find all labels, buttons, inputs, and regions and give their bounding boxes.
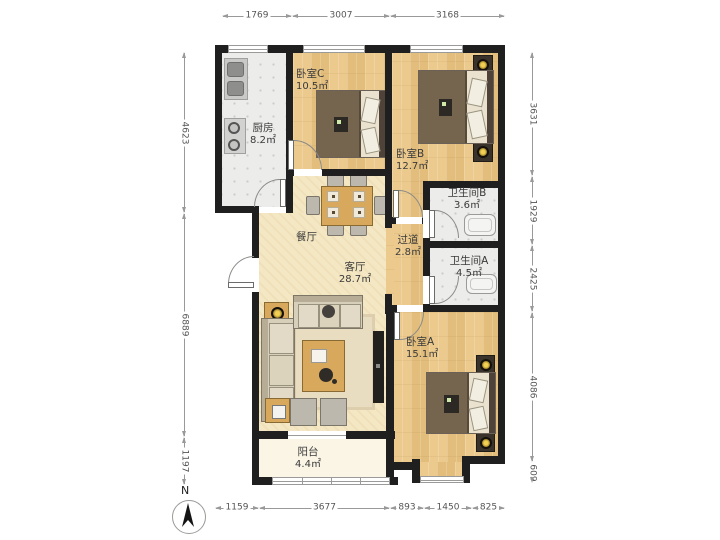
dimension-value: 609 (528, 462, 537, 483)
wall (386, 305, 394, 485)
room-label-living: 客厅 28.7㎡ (328, 261, 382, 287)
room-name: 客厅 (345, 261, 366, 274)
kitchen-sink-basin (227, 62, 244, 77)
room-area: 10.5㎡ (296, 81, 328, 94)
stove-burner (228, 139, 240, 151)
room-area: 4.4㎡ (295, 459, 321, 472)
dimension-left-1: 4623 (178, 52, 190, 213)
dimension-top-2: 3007 (292, 10, 390, 22)
dimension-left-2: 6889 (178, 213, 190, 437)
kitchen-sink-basin (227, 81, 244, 96)
window (410, 45, 463, 53)
dimension-value: 2425 (528, 265, 537, 292)
room-label-bedroom-b: 卧室B 12.7㎡ (396, 148, 428, 174)
dimension-value: 825 (478, 504, 499, 513)
dimension-right-1: 3631 (526, 52, 538, 176)
room-name: 过道 (398, 234, 419, 247)
dimension-value: 4623 (180, 119, 189, 146)
room-label-hallway: 过道 2.8㎡ (389, 234, 427, 260)
dimension-bottom-4: 1450 (424, 502, 472, 514)
door-leaf-bathroom-b (429, 210, 435, 238)
door-leaf-bedroom-a (394, 312, 400, 340)
nightstand (476, 433, 495, 452)
wall (215, 45, 222, 213)
wall (286, 45, 293, 213)
dimension-value: 1929 (528, 197, 537, 224)
room-area: 12.7㎡ (396, 161, 428, 174)
wall (498, 45, 505, 464)
room-name: 餐厅 (296, 231, 317, 244)
dimension-value: 6889 (180, 312, 189, 339)
bed-bedroom-c (316, 90, 386, 158)
bed-bedroom-a (426, 372, 496, 434)
dimension-bottom-2: 3677 (259, 502, 390, 514)
dimension-right-2: 1929 (526, 176, 538, 245)
room-area: 4.5㎡ (456, 268, 482, 281)
room-label-dining: 餐厅 (296, 231, 317, 244)
dimension-value: 1197 (180, 448, 189, 475)
bay-window (420, 476, 464, 483)
dimension-value: 893 (396, 504, 417, 513)
lamp-icon (480, 437, 492, 449)
tv-unit (373, 331, 384, 403)
room-label-bathroom-b: 卫生间B 3.6㎡ (440, 187, 494, 213)
dimension-value: 3677 (311, 504, 338, 513)
room-name: 卫生间A (450, 255, 489, 268)
floor-bedroom-a-bay (419, 462, 463, 477)
teapot-icon (319, 368, 333, 382)
dimension-value: 4086 (528, 374, 537, 401)
dimension-top-1: 1769 (222, 10, 292, 22)
place-setting (327, 207, 339, 218)
room-label-bedroom-a: 卧室A 15.1㎡ (406, 336, 438, 362)
wall (393, 462, 419, 470)
door-opening (294, 169, 322, 176)
door-leaf-bedroom-b (393, 190, 399, 218)
dimension-value: 3007 (328, 12, 355, 21)
floor-plan-canvas: 厨房 8.2㎡ 卧室C 10.5㎡ 卧室B 12.7㎡ 卫生间B 3.6㎡ 过道… (0, 0, 720, 540)
dimension-left-3: 1197 (178, 437, 190, 485)
ottoman (320, 398, 347, 426)
wall (423, 241, 498, 248)
nightstand (473, 142, 493, 162)
north-needle-icon (172, 500, 204, 532)
room-name: 阳台 (298, 446, 319, 459)
ottoman (290, 398, 317, 426)
room-name: 厨房 (253, 122, 274, 135)
place-setting (353, 207, 365, 218)
window (228, 45, 268, 53)
dimension-value: 1769 (244, 12, 271, 21)
dimension-value: 3631 (528, 101, 537, 128)
wall (252, 206, 259, 485)
bed-bedroom-b (418, 70, 494, 144)
room-label-kitchen: 厨房 8.2㎡ (240, 122, 286, 148)
dimension-right-4: 4086 (526, 312, 538, 462)
door-opening (396, 217, 422, 224)
dimension-value: 1450 (435, 504, 462, 513)
wall (385, 45, 392, 176)
dimension-bottom-5: 825 (472, 502, 505, 514)
tray-icon (311, 349, 327, 363)
dimension-value: 1159 (224, 504, 251, 513)
side-table (265, 398, 290, 423)
door-opening (397, 305, 423, 312)
room-label-balcony: 阳台 4.4㎡ (286, 446, 330, 472)
room-name: 卧室C (296, 68, 328, 81)
door-leaf-bedroom-c (288, 140, 294, 170)
room-name: 卧室B (396, 148, 428, 161)
place-setting (353, 191, 365, 202)
coffee-table (302, 340, 345, 392)
balcony-opening (288, 431, 346, 439)
window (303, 45, 365, 53)
dining-chair (306, 196, 320, 215)
room-area: 15.1㎡ (406, 349, 438, 362)
balcony-window (272, 477, 390, 485)
dimension-right-5: 609 (526, 462, 538, 483)
room-area: 8.2㎡ (250, 135, 276, 148)
room-area: 28.7㎡ (339, 274, 371, 287)
dimension-right-3: 2425 (526, 245, 538, 312)
north-compass: N (170, 484, 210, 536)
loveseat (293, 295, 363, 329)
door-swing-entry (228, 256, 254, 284)
lamp-icon (480, 359, 492, 371)
room-label-bedroom-c: 卧室C 10.5㎡ (296, 68, 328, 94)
room-name: 卫生间B (448, 187, 487, 200)
door-leaf-bathroom-a (429, 276, 435, 304)
dimension-value: 3168 (434, 12, 461, 21)
room-area: 3.6㎡ (454, 200, 480, 213)
door-leaf-entry (228, 282, 254, 288)
place-setting (327, 191, 339, 202)
lamp-icon (272, 405, 286, 419)
dimension-bottom-1: 1159 (215, 502, 259, 514)
room-area: 2.8㎡ (395, 247, 421, 260)
room-label-bathroom-a: 卫生间A 4.5㎡ (442, 255, 496, 281)
dimension-top-3: 3168 (390, 10, 505, 22)
stove-burner (228, 122, 240, 134)
north-label: N (181, 484, 189, 497)
bathtub (464, 214, 496, 236)
room-name: 卧室A (406, 336, 438, 349)
lamp-icon (477, 146, 489, 158)
door-leaf-kitchen (280, 179, 286, 207)
dimension-bottom-3: 893 (390, 502, 424, 514)
